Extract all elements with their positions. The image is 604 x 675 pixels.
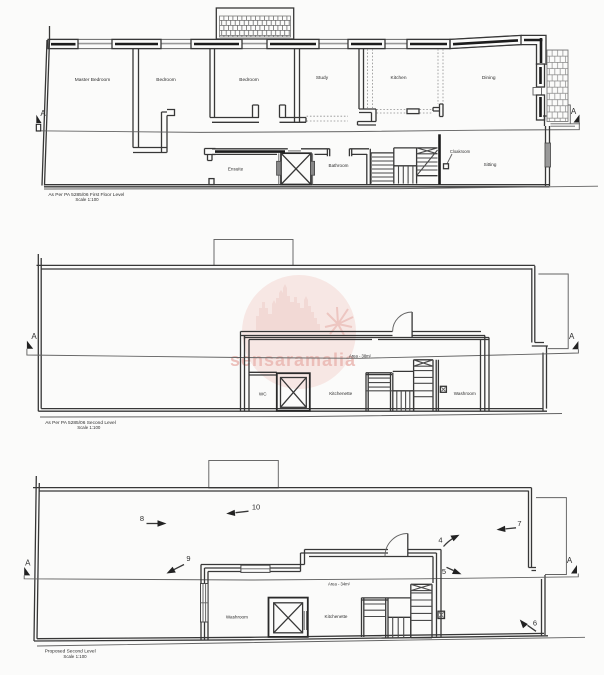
svg-text:Scale 1:100: Scale 1:100 xyxy=(63,654,87,659)
svg-text:5: 5 xyxy=(442,567,446,576)
svg-text:9: 9 xyxy=(186,554,190,563)
svg-text:Study: Study xyxy=(316,75,329,81)
svg-text:10: 10 xyxy=(252,503,260,512)
svg-text:Bathroom: Bathroom xyxy=(329,163,349,168)
svg-text:Scale 1:100: Scale 1:100 xyxy=(75,197,99,202)
svg-text:Master Bedroom: Master Bedroom xyxy=(75,77,110,83)
svg-text:Sitting: Sitting xyxy=(484,162,497,167)
svg-text:A: A xyxy=(25,559,31,568)
svg-text:Kitchenette: Kitchenette xyxy=(329,391,352,396)
svg-text:A: A xyxy=(571,107,577,116)
svg-text:8: 8 xyxy=(140,514,144,523)
svg-text:A: A xyxy=(569,332,575,341)
svg-text:Washroom: Washroom xyxy=(226,615,248,620)
svg-text:A: A xyxy=(40,109,46,118)
svg-text:Kitchen: Kitchen xyxy=(391,75,407,81)
svg-text:Bedroom: Bedroom xyxy=(156,77,175,83)
svg-text:Area - 38m²: Area - 38m² xyxy=(349,354,372,359)
svg-text:WC: WC xyxy=(259,392,267,397)
svg-text:Dining: Dining xyxy=(482,75,496,81)
svg-text:6: 6 xyxy=(533,619,537,628)
svg-text:Scale 1:100: Scale 1:100 xyxy=(77,425,101,430)
svg-text:Washroom: Washroom xyxy=(454,391,476,396)
svg-text:A: A xyxy=(567,556,573,565)
svg-text:4: 4 xyxy=(438,536,442,545)
svg-text:Kitchenette: Kitchenette xyxy=(325,614,348,619)
svg-text:Cloakroom: Cloakroom xyxy=(450,149,471,154)
svg-text:Ensuite: Ensuite xyxy=(228,167,244,172)
svg-text:7: 7 xyxy=(517,519,521,528)
svg-text:Area - 34m²: Area - 34m² xyxy=(328,581,351,586)
svg-text:Bedroom: Bedroom xyxy=(239,77,258,83)
svg-text:A: A xyxy=(31,332,37,341)
